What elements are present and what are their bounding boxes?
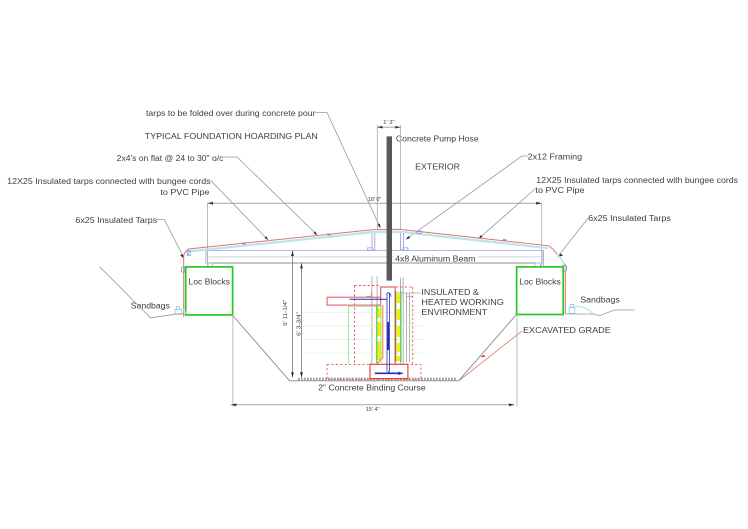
- svg-text:15' 4": 15' 4": [366, 407, 380, 413]
- svg-text:6x25 Insulated Tarps: 6x25 Insulated Tarps: [588, 214, 671, 223]
- svg-text:EXCAVATED GRADE: EXCAVATED GRADE: [523, 326, 611, 335]
- svg-text:6' 11-1/4": 6' 11-1/4": [283, 300, 289, 326]
- svg-text:Loc Blocks: Loc Blocks: [519, 278, 561, 287]
- svg-text:Concrete Pump Hose: Concrete Pump Hose: [396, 135, 479, 144]
- svg-text:2" Concrete Binding Course: 2" Concrete Binding Course: [318, 384, 426, 393]
- svg-text:6' 3-3/4": 6' 3-3/4": [296, 312, 302, 336]
- svg-text:12X25 Insulated tarps connecte: 12X25 Insulated tarps connected with bun…: [7, 177, 210, 186]
- svg-text:to PVC Pipe: to PVC Pipe: [536, 186, 586, 195]
- svg-text:tarps to be folded over during: tarps to be folded over during concrete …: [146, 109, 316, 118]
- svg-text:Sandbags: Sandbags: [580, 296, 620, 305]
- svg-text:EXTERIOR: EXTERIOR: [415, 163, 460, 172]
- svg-text:12X25 Insulated tarps connecte: 12X25 Insulated tarps connected with bun…: [536, 176, 738, 185]
- svg-text:to PVC Pipe: to PVC Pipe: [160, 188, 210, 197]
- svg-text:1' 3": 1' 3": [383, 120, 395, 126]
- svg-text:ENVIRONMENT: ENVIRONMENT: [421, 308, 487, 317]
- svg-text:TYPICAL FOUNDATION HOARDING PL: TYPICAL FOUNDATION HOARDING PLAN: [145, 132, 318, 141]
- svg-text:2x12 Framing: 2x12 Framing: [528, 153, 582, 162]
- svg-text:2x4's on flat @ 24 to 30" o/c: 2x4's on flat @ 24 to 30" o/c: [117, 154, 224, 163]
- svg-text:Sandbags: Sandbags: [131, 301, 170, 310]
- svg-text:HEATED WORKING: HEATED WORKING: [421, 298, 503, 307]
- svg-text:INSULATED &: INSULATED &: [421, 288, 479, 297]
- svg-text:4x8 Aluminum Beam: 4x8 Aluminum Beam: [395, 255, 476, 264]
- svg-text:6x25 Insulated Tarps: 6x25 Insulated Tarps: [75, 216, 157, 225]
- svg-text:18' 0": 18' 0": [368, 197, 382, 203]
- svg-text:Loc Blocks: Loc Blocks: [188, 278, 230, 287]
